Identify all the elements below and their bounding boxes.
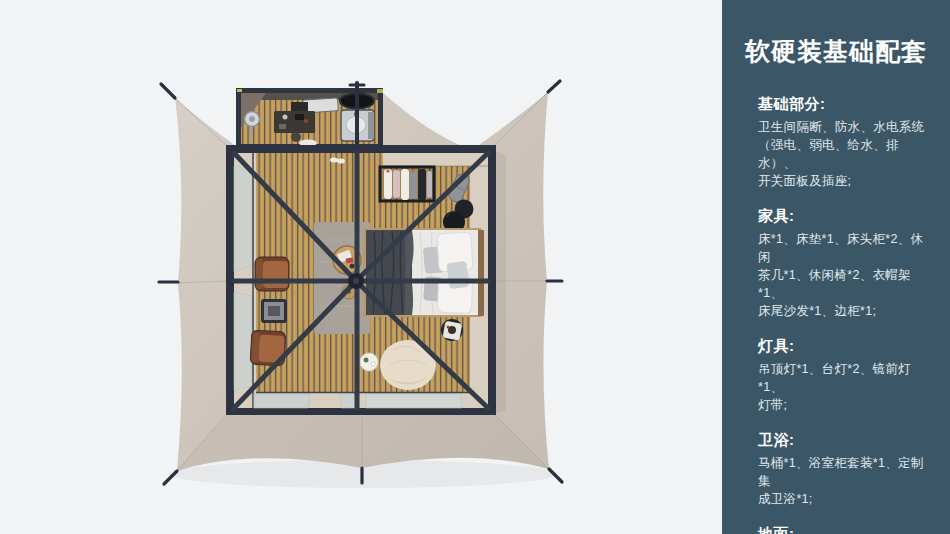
section-bathroom: 卫浴: 马桶*1、浴室柜套装*1、定制集 成卫浴*1; (758, 431, 936, 508)
section-flooring: 地面: 强化木地板、卫生间防滑防潮石 塑板; (758, 525, 936, 534)
vanity-table (274, 111, 315, 133)
vanity-stool (291, 132, 301, 142)
info-panel: 软硬装基础配套 基础部分: 卫生间隔断、防水、水电系统 （强电、弱电、给水、排水… (722, 0, 950, 534)
throw-blanket (366, 230, 414, 315)
tent-floorplan-render (0, 0, 722, 534)
section-heading: 卫浴: (758, 431, 936, 450)
section-body: 床*1、床垫*1、床头柜*2、休闲 茶几*1、休闲椅*2、衣帽架*1、 床尾沙发… (758, 230, 936, 320)
slide: 软硬装基础配套 基础部分: 卫生间隔断、防水、水电系统 （强电、弱电、给水、排水… (0, 0, 950, 534)
section-furniture: 家具: 床*1、床垫*1、床头柜*2、休闲 茶几*1、休闲椅*2、衣帽架*1、 … (758, 207, 936, 320)
section-body: 卫生间隔断、防水、水电系统 （强电、弱电、给水、排水）、 开关面板及插座; (758, 118, 936, 190)
headboard (478, 230, 484, 316)
side-round-table (360, 353, 378, 371)
panel-title: 软硬装基础配套 (730, 36, 942, 66)
section-body: 马桶*1、浴室柜套装*1、定制集 成卫浴*1; (758, 454, 936, 508)
section-heading: 基础部分: (758, 95, 936, 114)
corner-accent (377, 89, 383, 93)
clothes-rack (380, 167, 434, 201)
lounge-chair-1 (255, 257, 289, 291)
section-lighting: 灯具: 吊顶灯*1、台灯*2、镜前灯*1、 灯带; (758, 337, 936, 414)
section-body: 吊顶灯*1、台灯*2、镜前灯*1、 灯带; (758, 360, 936, 414)
vanity-mirror (291, 102, 308, 111)
chairside-table (261, 299, 287, 323)
panel-sections: 基础部分: 卫生间隔断、防水、水电系统 （强电、弱电、给水、排水）、 开关面板及… (722, 66, 950, 534)
section-heading: 家具: (758, 207, 936, 226)
section-basics: 基础部分: 卫生间隔断、防水、水电系统 （强电、弱电、给水、排水）、 开关面板及… (758, 95, 936, 190)
bathroom (236, 88, 383, 148)
corner-accent (237, 89, 242, 92)
hanging-clothes (384, 169, 432, 200)
bedside-table (441, 319, 463, 341)
section-heading: 地面: (758, 525, 936, 534)
section-heading: 灯具: (758, 337, 936, 356)
